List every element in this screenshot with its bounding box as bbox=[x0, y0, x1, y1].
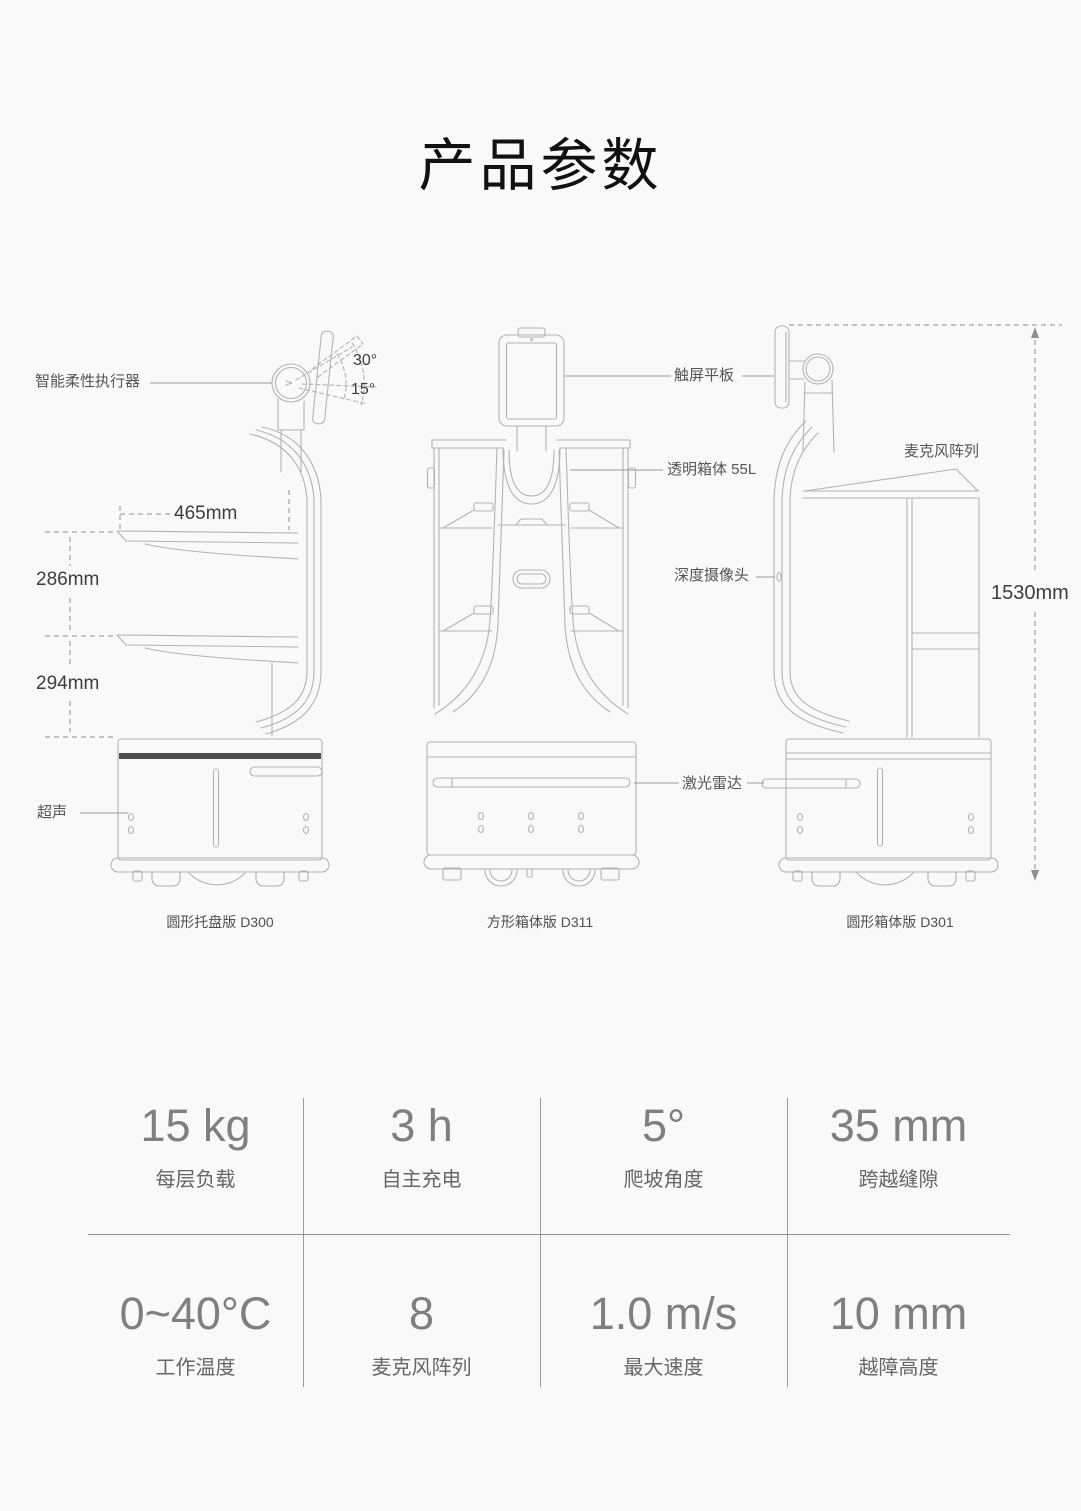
dimension-arrows bbox=[1031, 327, 1039, 881]
spec-value: 35 mm bbox=[830, 1102, 968, 1149]
spec-label: 越障高度 bbox=[859, 1351, 939, 1380]
spec-value: 5° bbox=[642, 1102, 685, 1149]
robot-d300-drawing bbox=[111, 331, 378, 886]
spec-cell-obstacle-height: 10 mm 越障高度 bbox=[787, 1234, 1010, 1390]
spec-label: 最大速度 bbox=[624, 1351, 704, 1380]
spec-cell-max-speed: 1.0 m/s 最大速度 bbox=[540, 1234, 787, 1390]
spec-value: 15 kg bbox=[140, 1102, 250, 1149]
spec-cell-gap-crossing: 35 mm 跨越缝隙 bbox=[787, 1090, 1010, 1234]
product-spec-page: 产品参数 bbox=[0, 0, 1081, 1511]
robot-d301-drawing bbox=[762, 326, 998, 886]
label-angle-down: 15° bbox=[351, 381, 375, 399]
spec-label: 麦克风阵列 bbox=[372, 1351, 472, 1380]
spec-label: 工作温度 bbox=[156, 1351, 236, 1380]
spec-value: 10 mm bbox=[830, 1290, 968, 1337]
spec-value: 8 bbox=[409, 1290, 434, 1337]
label-angle-up: 30° bbox=[353, 352, 377, 370]
label-gap-upper: 286mm bbox=[36, 570, 99, 591]
spec-label: 爬坡角度 bbox=[624, 1163, 704, 1192]
label-depth-camera: 深度摄像头 bbox=[674, 568, 749, 585]
label-transparent-box: 透明箱体 55L bbox=[667, 462, 756, 479]
spec-label: 跨越缝隙 bbox=[859, 1163, 939, 1192]
label-tray-width: 465mm bbox=[174, 504, 237, 525]
spec-cell-mic-array: 8 麦克风阵列 bbox=[303, 1234, 540, 1390]
caption-d301: 圆形箱体版 D301 bbox=[790, 912, 1010, 932]
spec-cell-temperature: 0~40°C 工作温度 bbox=[88, 1234, 303, 1390]
label-touchscreen: 触屏平板 bbox=[674, 368, 734, 385]
spec-cell-charging: 3 h 自主充电 bbox=[303, 1090, 540, 1234]
base-dark-band bbox=[119, 753, 321, 759]
depth-camera-sensor bbox=[777, 573, 781, 582]
spec-cell-payload: 15 kg 每层负载 bbox=[88, 1090, 303, 1234]
spec-label: 每层负载 bbox=[156, 1163, 236, 1192]
dimension-lines bbox=[45, 325, 1062, 877]
robot-d311-drawing bbox=[424, 328, 639, 886]
spec-value: 0~40°C bbox=[120, 1290, 272, 1337]
caption-d300: 圆形托盘版 D300 bbox=[110, 912, 330, 932]
label-mic-array: 麦克风阵列 bbox=[904, 444, 979, 461]
spec-grid: 15 kg 每层负载 3 h 自主充电 5° 爬坡角度 35 mm 跨越缝隙 0… bbox=[88, 1090, 1010, 1390]
caption-d311: 方形箱体版 D311 bbox=[430, 912, 650, 932]
spec-value: 1.0 m/s bbox=[590, 1290, 738, 1337]
spec-value: 3 h bbox=[390, 1102, 453, 1149]
label-actuator: 智能柔性执行器 bbox=[35, 374, 140, 391]
spec-label: 自主充电 bbox=[382, 1163, 462, 1192]
label-total-height: 1530mm bbox=[991, 582, 1069, 604]
label-gap-lower: 294mm bbox=[36, 674, 99, 695]
label-lidar: 激光雷达 bbox=[682, 776, 742, 793]
spec-cell-climb-angle: 5° 爬坡角度 bbox=[540, 1090, 787, 1234]
label-ultrasonic: 超声 bbox=[37, 805, 67, 822]
